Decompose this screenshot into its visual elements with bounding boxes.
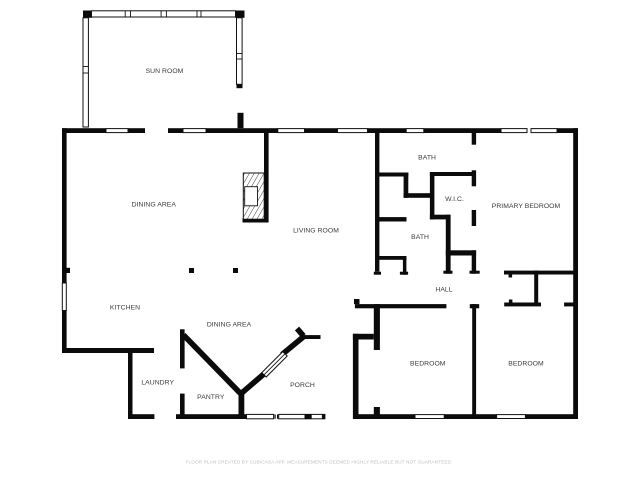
svg-text:LAUNDRY: LAUNDRY xyxy=(141,380,174,387)
svg-text:PANTRY: PANTRY xyxy=(197,394,225,401)
svg-text:SUN ROOM: SUN ROOM xyxy=(146,68,184,75)
svg-text:BATH: BATH xyxy=(411,234,429,241)
svg-text:DINING AREA: DINING AREA xyxy=(132,201,177,208)
svg-text:PORCH: PORCH xyxy=(290,382,315,389)
svg-text:LIVING ROOM: LIVING ROOM xyxy=(293,228,339,235)
svg-text:FLOOR PLAN CREATED BY CUBICASA: FLOOR PLAN CREATED BY CUBICASA APP. MEAS… xyxy=(186,460,453,465)
svg-text:W.I.C.: W.I.C. xyxy=(445,196,464,203)
svg-text:BATH: BATH xyxy=(418,155,436,162)
svg-text:HALL: HALL xyxy=(435,286,452,293)
svg-text:DINING AREA: DINING AREA xyxy=(207,321,252,328)
svg-text:PRIMARY BEDROOM: PRIMARY BEDROOM xyxy=(492,203,561,210)
svg-text:KITCHEN: KITCHEN xyxy=(110,304,140,311)
svg-text:BEDROOM: BEDROOM xyxy=(410,361,446,368)
svg-text:BEDROOM: BEDROOM xyxy=(508,361,544,368)
